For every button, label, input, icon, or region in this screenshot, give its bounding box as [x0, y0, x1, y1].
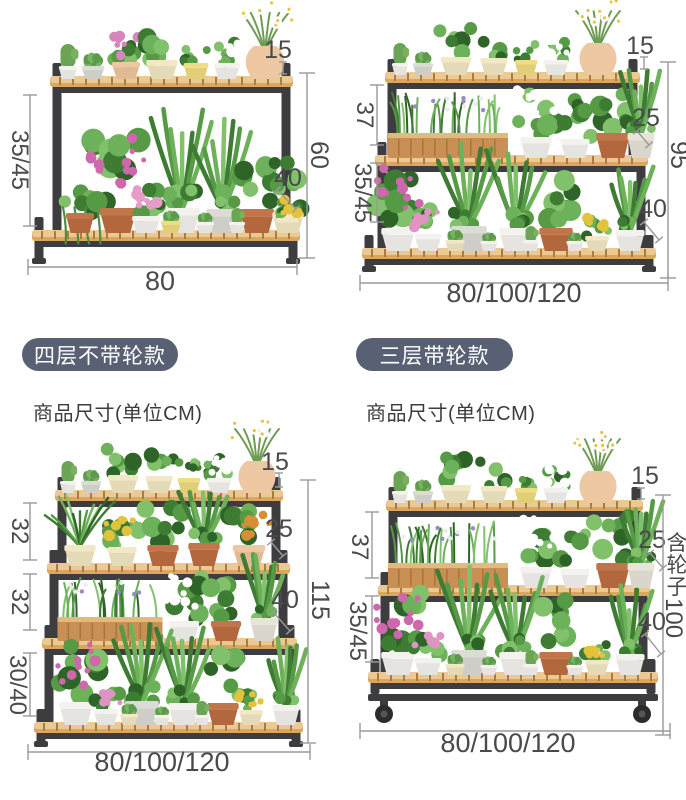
dim-tier-gap: 35/45 — [349, 163, 376, 223]
dim-width: 80/100/120 — [94, 747, 229, 777]
dim-depth: 40 — [271, 586, 299, 614]
dim-depth: 40 — [638, 608, 666, 636]
dim-tier-gap: 37 — [346, 534, 373, 561]
stand-three-tier — [362, 0, 660, 272]
dim-total-height: 60 — [305, 141, 333, 169]
stand-three-tier-wheels — [368, 428, 663, 723]
dim-depth: 40 — [274, 164, 302, 192]
dim-total-height: 115 — [306, 580, 334, 620]
dim-depth: 40 — [639, 195, 667, 223]
variant-badge-three-tier-wheels: 三层带轮款 — [356, 338, 513, 371]
dim-total-height-char: 轮 — [667, 554, 686, 577]
dim-pot-height: 15 — [264, 36, 292, 64]
dim-shelf-step: 25 — [265, 515, 293, 543]
dim-width: 80/100/120 — [446, 278, 581, 308]
dim-pot-height: 15 — [626, 32, 654, 60]
dim-total-height-char: 子 — [667, 576, 686, 599]
dim-pot-height: 15 — [631, 462, 659, 490]
product-spec-image: 1535/45604080153735/4525954080/100/12015… — [0, 0, 686, 800]
dim-pot-height: 15 — [261, 448, 289, 476]
dim-tier-gap: 35/45 — [344, 601, 371, 661]
dim-tier-gap: 32 — [6, 518, 33, 545]
dim-shelf-step: 25 — [632, 104, 660, 132]
dim-width: 80/100/120 — [440, 728, 575, 758]
dim-width: 80 — [145, 266, 175, 296]
variant-badge-four-tier: 四层不带轮款 — [22, 338, 178, 371]
dim-tier-gap: 35/45 — [6, 130, 33, 190]
dim-tier-gap: 30/40 — [4, 655, 31, 715]
dim-total-height-char: 含 — [667, 532, 686, 555]
dim-total-height: 95 — [665, 141, 686, 169]
size-caption-right: 商品尺寸(单位CM) — [366, 397, 535, 426]
dim-shelf-step: 25 — [638, 526, 666, 554]
size-caption-left: 商品尺寸(单位CM) — [33, 397, 202, 426]
dim-tier-gap: 37 — [351, 102, 378, 129]
dim-tier-gap: 32 — [6, 589, 33, 616]
